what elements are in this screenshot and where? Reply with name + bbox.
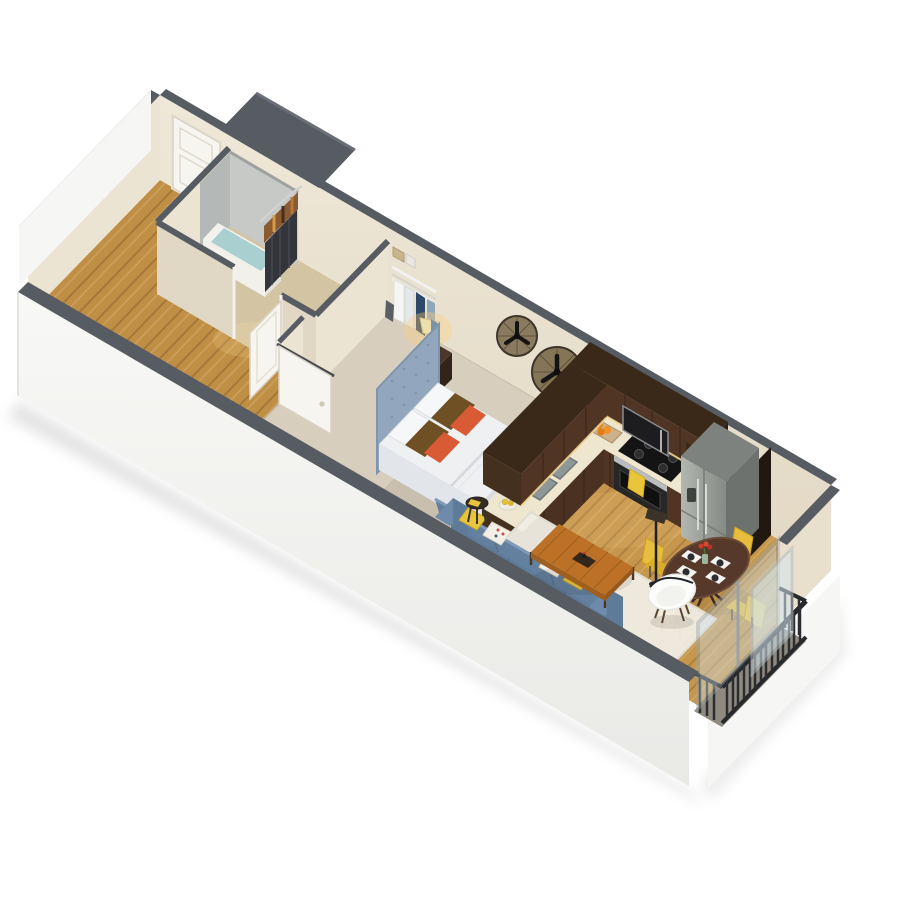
plate-2: [716, 559, 723, 566]
vase: [702, 554, 708, 564]
floor-plan-stage: [0, 0, 900, 900]
plate-3: [711, 574, 718, 581]
orange-3: [597, 428, 604, 435]
pattern-dot: [502, 533, 505, 536]
wall-clock-small: [497, 316, 537, 356]
flower-1: [698, 543, 703, 548]
fruit-yellow-1: [502, 499, 508, 505]
garment-white-1: [394, 280, 404, 323]
bottle-1: [582, 554, 586, 558]
plate-1: [687, 553, 694, 560]
side-table: [466, 497, 488, 524]
bottle-cap-red: [583, 552, 585, 554]
pattern-dot: [495, 535, 498, 538]
sliding-door-handle: [319, 401, 324, 406]
floor-plan-rendering: [0, 0, 900, 900]
fridge-dispenser: [687, 488, 696, 502]
bottle-2: [587, 557, 591, 561]
flower-3: [708, 545, 713, 550]
flower-2: [703, 541, 708, 546]
pattern-dot: [497, 529, 500, 532]
accent-chair-shadow: [650, 615, 694, 629]
clock-hub: [514, 333, 520, 339]
